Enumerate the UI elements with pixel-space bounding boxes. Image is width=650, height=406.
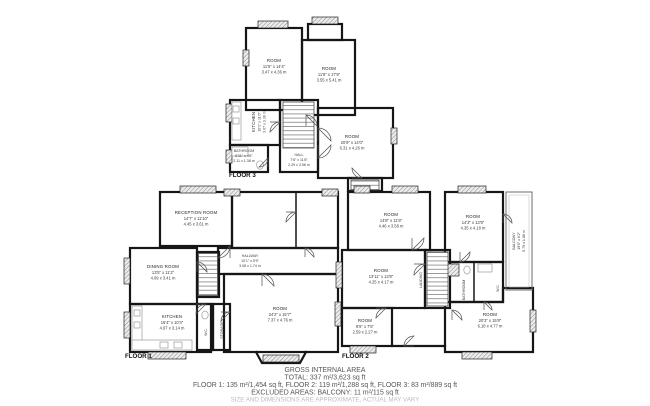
stairs [199, 254, 218, 296]
room-label: DINING ROOM [147, 264, 179, 269]
room-label: KITCHEN [162, 314, 182, 319]
floor1-label: FLOOR 1 [125, 353, 152, 360]
toilet [202, 311, 208, 319]
door-arc [286, 212, 296, 222]
footer-floor-areas: FLOOR 1: 135 m²/1,454 sq ft, FLOOR 2: 11… [193, 382, 457, 389]
room-dimensions-imperial: 13'5" x 11'2" [152, 270, 175, 275]
room-dimensions-metric: 4.45 x 3.61 m [184, 222, 209, 227]
room-dimensions-metric: 2.11 x 1.38 m [233, 159, 255, 163]
door-arc [452, 310, 462, 320]
floor2-plan: ROOM 14'8" x 11'9" 4.46 x 3.58 m ROOM 14… [336, 186, 536, 360]
room-label: BATHROOM [234, 149, 255, 153]
room-label: ROOM [345, 134, 359, 139]
room-label: LANDING [419, 272, 423, 288]
floor3-plan: ROOM 11'5" x 14'4" 3.47 x 4.36 m ROOM 11… [226, 17, 397, 191]
door-arc [221, 312, 230, 321]
room-dimensions-imperial: 20'9" x 14'0" [341, 140, 364, 145]
window [391, 128, 397, 144]
door-arc [262, 274, 274, 286]
window [224, 189, 240, 196]
room-label: HALLWAY [242, 254, 259, 258]
floor1-plan: RECEPTION ROOM 14'7" x 11'10" 4.45 x 3.6… [124, 186, 341, 363]
window [530, 310, 536, 332]
room-dimensions-imperial: 11'5" x 14'4" [263, 64, 286, 69]
toilet [464, 266, 470, 274]
room-label: ROOM [273, 306, 287, 311]
toilet [257, 161, 264, 169]
floorplan-page: ROOM 11'5" x 14'4" 3.47 x 4.36 m ROOM 11… [0, 0, 650, 406]
room-label: HALL [295, 153, 304, 157]
door-arc [376, 308, 386, 318]
floor1-right-block-walls [232, 192, 338, 248]
kitchen-sink [233, 106, 239, 112]
door-arc [503, 214, 512, 223]
room-dimensions-metric: 6.18 x 4.77 m [478, 324, 503, 329]
room-label: STORAGE [220, 321, 224, 339]
room-label: BATHROOM [462, 280, 466, 301]
room-dimensions-metric: 4.25 x 4.17 m [369, 280, 394, 285]
room-dimensions-imperial: 11'8" x 17'9" [318, 72, 341, 77]
footer-disclaimer: SIZE AND DIMENSIONS ARE APPROXIMATE, ACT… [231, 397, 420, 404]
kitchen-hob [134, 322, 140, 328]
window [243, 50, 249, 66]
room-label: ROOM [384, 212, 398, 217]
kitchen-appliance [174, 342, 182, 348]
kitchen-hob [233, 118, 239, 124]
room-label-group: ROOM 20'3" x 15'8" 6.18 x 4.77 m [478, 312, 503, 329]
stairs [283, 102, 314, 148]
room-dimensions-metric: 3.08 x 1.74 m [239, 264, 261, 268]
room-label-group: ROOM 24'2" x 15'7" 7.37 x 4.76 m [268, 306, 293, 323]
floor3-dormer-walls [308, 24, 342, 40]
room-label-group: ROOM 8'6" x 7'5" 2.59 x 2.27 m [353, 318, 378, 335]
window [226, 150, 232, 163]
window [322, 189, 338, 196]
room-label: ROOM [267, 58, 281, 63]
window [180, 186, 216, 193]
room-label-group: HALLWAY 10'1" x 5'9" 3.08 x 1.74 m [239, 254, 261, 268]
room-label: ROOM [322, 66, 336, 71]
floor3-label: FLOOR 3 [229, 172, 256, 179]
room-label-group: W.C. [204, 328, 208, 336]
room-label-group: STORAGE [220, 321, 224, 339]
room-dimensions-metric: 3.07 x 3.36 m [263, 111, 267, 133]
room-label-group: LANDING [419, 272, 423, 288]
window [148, 352, 186, 359]
stairs [427, 252, 448, 306]
room-label: RECEPTION ROOM [175, 210, 218, 215]
room-dimensions-imperial: 19'0" x 6'2" [517, 231, 521, 249]
room-label: ROOM [483, 312, 497, 317]
footer: GROSS INTERNAL AREA TOTAL: 337 m²/3,623 … [193, 367, 457, 404]
window [350, 346, 376, 353]
window [392, 186, 418, 193]
room-dimensions-imperial: 14'7" x 11'10" [184, 216, 209, 221]
room-dimensions-metric: 3.47 x 4.36 m [262, 70, 287, 75]
window [458, 186, 486, 193]
room-dimensions-imperial: 10'1" x 5'9" [241, 259, 259, 263]
room-dimensions-metric: 5.79 x 1.88 m [522, 230, 526, 252]
room-dimensions-imperial: 10'1" x 11'0" [258, 112, 262, 132]
window [226, 104, 232, 122]
room-dimensions-imperial: 13'11" x 13'8" [369, 274, 394, 279]
room-label-group: ROOM 13'11" x 13'8" 4.25 x 4.17 m [369, 268, 394, 285]
room-label-group: ROOM 11'8" x 17'9" 3.55 x 5.41 m [317, 66, 342, 83]
room-dimensions-imperial: 24'2" x 15'7" [269, 312, 292, 317]
room-dimensions-metric: 4.35 x 4.18 m [461, 226, 486, 231]
room-dimensions-imperial: 8'6" x 7'5" [356, 324, 374, 329]
door-arc [404, 336, 414, 346]
room-label: W.C. [496, 284, 500, 292]
room-dimensions-metric: 3.55 x 5.41 m [317, 78, 342, 83]
room-label-group: BATHROOM 6'11" x 4'6" 2.11 x 1.38 m [233, 149, 255, 163]
room-label-group: ROOM 14'8" x 11'9" 4.46 x 3.58 m [379, 212, 404, 229]
window [354, 186, 370, 193]
room-label-group: RECEPTION ROOM 14'7" x 11'10" 4.45 x 3.6… [175, 210, 218, 227]
room-label: BALCONY [512, 232, 516, 250]
bathtub [478, 264, 492, 272]
room-label-group: KITCHEN 10'1" x 11'0" 3.07 x 3.36 m [251, 111, 267, 133]
window [124, 258, 130, 284]
room-dimensions-metric: 4.97 x 3.14 m [160, 326, 185, 331]
room-dimensions-imperial: 7'6" x 11'8" [290, 158, 308, 162]
room-dimensions-metric: 2.29 x 3.56 m [288, 163, 310, 167]
room-dimensions-metric: 7.37 x 4.76 m [268, 318, 293, 323]
window [263, 355, 299, 362]
floorplan-canvas: ROOM 11'5" x 14'4" 3.47 x 4.36 m ROOM 11… [0, 0, 650, 406]
door-arc [484, 302, 492, 310]
room-dimensions-metric: 4.46 x 3.58 m [379, 224, 404, 229]
room-dimensions-metric: 2.59 x 2.27 m [353, 330, 378, 335]
room-dimensions-imperial: 16'4" x 10'4" [161, 320, 184, 325]
window [124, 312, 130, 338]
room-dimensions-imperial: 14'3" x 13'9" [462, 220, 485, 225]
footer-excluded-areas: EXCLUDED AREAS: BALCONY: 11 m²/115 sq ft [251, 390, 399, 397]
room-label-group: W.C. [496, 284, 500, 292]
door-arc [305, 248, 314, 257]
room-label: KITCHEN [251, 112, 256, 132]
kitchen-sink [134, 310, 140, 316]
door-arc [460, 252, 470, 262]
room-label-group: BALCONY 19'0" x 6'2" 5.79 x 1.88 m [512, 230, 526, 252]
room-label: ROOM [374, 268, 388, 273]
room-dimensions-imperial: 6'11" x 4'6" [235, 154, 253, 158]
room-dimensions-imperial: 20'3" x 15'8" [479, 318, 502, 323]
room-dimensions-metric: 4.09 x 3.41 m [151, 276, 176, 281]
floor2-label: FLOOR 2 [342, 353, 369, 360]
room-label: W.C. [204, 328, 208, 336]
room-dimensions-imperial: 14'8" x 11'9" [380, 218, 403, 223]
door-arc [318, 128, 331, 141]
door-arc [270, 122, 280, 132]
kitchen-appliance [160, 342, 168, 348]
room-label: ROOM [358, 318, 372, 323]
footer-gross-internal-area: GROSS INTERNAL AREA [285, 367, 366, 374]
room-dimensions-metric: 6.31 x 4.26 m [340, 146, 365, 151]
window [258, 21, 288, 28]
floor1-hallway-walls [218, 248, 338, 274]
window [335, 302, 341, 326]
room-label-group: BATHROOM [462, 280, 466, 301]
door-arc [318, 145, 331, 158]
door-arc [352, 168, 362, 178]
window [462, 352, 492, 359]
room-label-group: DINING ROOM 13'5" x 11'2" 4.09 x 3.41 m [147, 264, 179, 281]
room-label-group: ROOM 14'3" x 13'9" 4.35 x 4.18 m [461, 214, 486, 231]
door-arc [412, 238, 424, 250]
room-label-group: ROOM 20'9" x 14'0" 6.31 x 4.26 m [340, 134, 365, 151]
window [312, 17, 338, 24]
room-label: ROOM [466, 214, 480, 219]
footer-total-area: TOTAL: 337 m²/3,623 sq ft [285, 375, 366, 382]
room-label-group: HALL 7'6" x 11'8" 2.29 x 3.56 m [288, 153, 310, 167]
window [336, 262, 342, 288]
room-label-group: KITCHEN 16'4" x 10'4" 4.97 x 3.14 m [160, 314, 185, 331]
room-label-group: ROOM 11'5" x 14'4" 3.47 x 4.36 m [262, 58, 287, 75]
shower [447, 264, 459, 276]
